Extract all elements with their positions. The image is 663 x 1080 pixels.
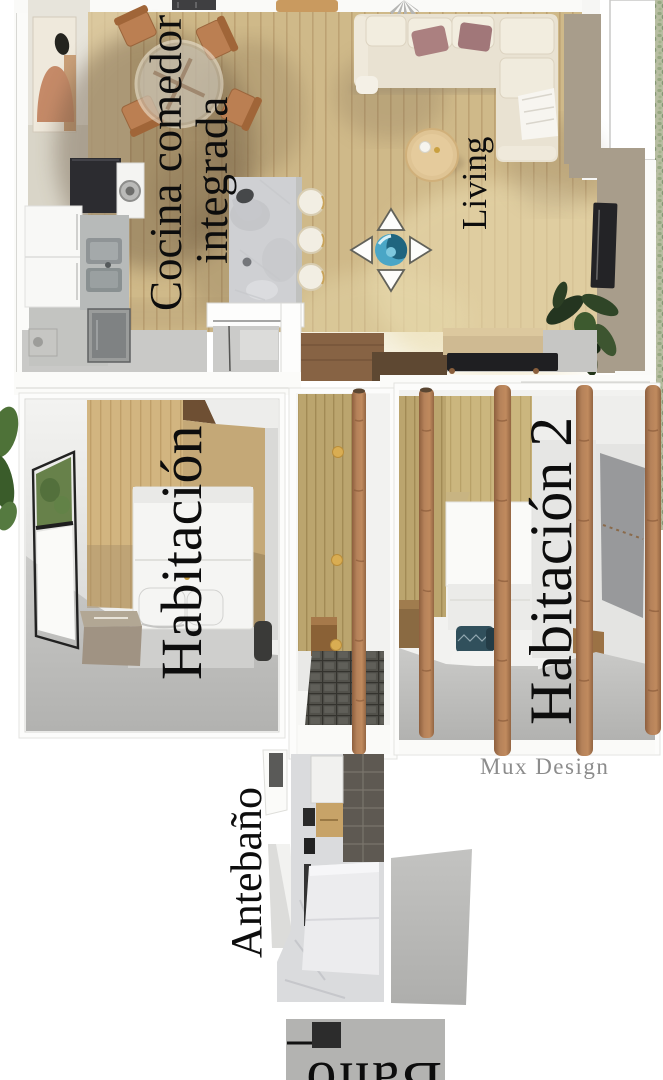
- svg-text:integrada: integrada: [187, 97, 237, 264]
- svg-text:Baño: Baño: [303, 1050, 442, 1080]
- svg-text:Antebaño: Antebaño: [222, 787, 271, 958]
- svg-text:Habitación 2: Habitación 2: [518, 417, 584, 725]
- svg-text:Mux Design: Mux Design: [480, 754, 609, 779]
- svg-text:Habitación: Habitación: [149, 426, 214, 680]
- svg-text:Living: Living: [455, 137, 494, 230]
- svg-text:Cocina comedor: Cocina comedor: [141, 15, 191, 311]
